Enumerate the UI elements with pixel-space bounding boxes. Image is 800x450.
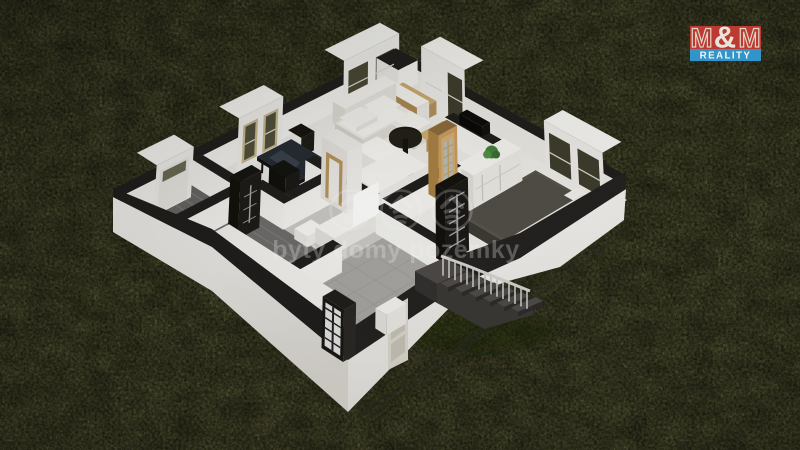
svg-text:&: & bbox=[714, 20, 736, 55]
svg-text:M: M bbox=[690, 23, 712, 53]
svg-text:M: M bbox=[738, 23, 760, 53]
svg-text:REALITY: REALITY bbox=[700, 51, 752, 62]
